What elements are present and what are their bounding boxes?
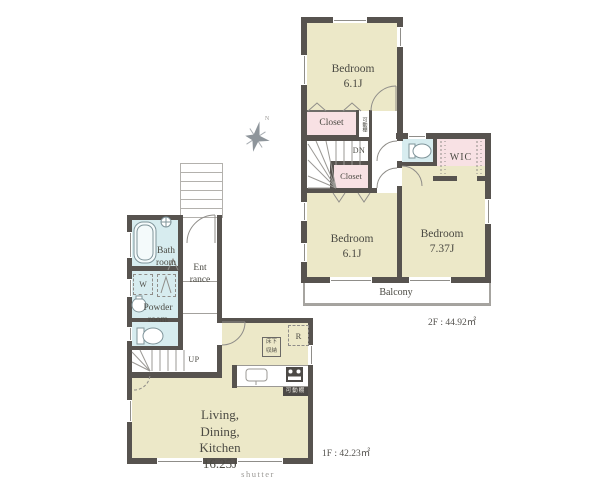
wall [402, 162, 437, 166]
label-stairs-up: UP [183, 355, 205, 365]
window [308, 345, 313, 365]
wall [217, 318, 313, 323]
entrance-approach-steps [180, 163, 223, 218]
window [127, 400, 132, 422]
wall [217, 215, 222, 322]
window [408, 133, 426, 139]
window [301, 243, 307, 262]
room-toilet-2f [402, 139, 433, 162]
wall [127, 215, 183, 220]
hall-step-line [183, 313, 217, 314]
window [485, 199, 491, 224]
label-powder-room: Powderroom [135, 291, 181, 327]
label-area-1f: 1F : 42.23㎡ [322, 449, 402, 461]
label-closet-2: Closet [334, 171, 368, 182]
window [333, 17, 367, 23]
window [330, 277, 372, 283]
compass-icon [242, 119, 273, 155]
kitchen-counter [237, 365, 308, 387]
wall [127, 346, 183, 350]
underfloor-storage-box: 床下収納 [262, 337, 281, 357]
wall [330, 161, 372, 165]
label-movable-shelf-2f: 可動棚 [359, 112, 369, 137]
window [301, 202, 307, 221]
label-stairs-dn: DN [346, 146, 372, 156]
window [127, 279, 132, 297]
window [301, 55, 307, 85]
label-bedroom-2: Bedroom6.1J [312, 218, 392, 261]
balcony-outer-line [303, 305, 491, 306]
wall [477, 176, 485, 181]
window [127, 232, 132, 258]
wall [301, 188, 377, 193]
wall [369, 110, 372, 141]
wall [433, 176, 457, 181]
label-wic: WIC [437, 152, 485, 165]
label-bathroom: Bathroom [150, 234, 182, 270]
label-entrance: Entrance [183, 251, 217, 287]
label-bedroom-3: Bedroom7.37J [402, 213, 482, 256]
window [127, 327, 132, 341]
closet-opening-line [307, 110, 356, 112]
label-bedroom-1: Bedroom6.1J [313, 48, 393, 91]
window [397, 27, 403, 47]
label-ldk: Living,Dining,Kitchen16.25J [180, 391, 260, 472]
label-area-2f: 2F : 44.92㎡ [428, 318, 508, 330]
floorplan-canvas: Bedroom6.1J Closet 可動棚 DN Closet WIC Bed… [0, 0, 600, 485]
compass-north-label: N [262, 116, 272, 124]
refrigerator-box: R [288, 325, 309, 346]
label-shutter: shutter [230, 469, 286, 480]
label-movable-shelf-1f: 可動棚 [283, 387, 308, 396]
wall [127, 372, 222, 378]
window [409, 277, 451, 283]
label-closet-1: Closet [307, 118, 356, 130]
label-balcony: Balcony [306, 287, 486, 300]
